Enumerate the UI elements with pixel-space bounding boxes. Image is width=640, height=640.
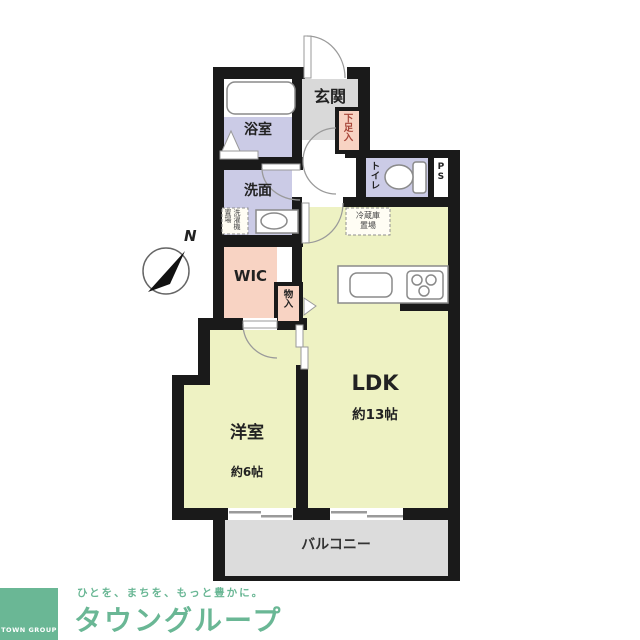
room-label-closet: 物入 (281, 289, 291, 320)
room-label-bathroom: 浴室 (224, 123, 292, 138)
room-label-bedroom: 洋室 (202, 424, 292, 443)
room-label-washer-space: 洗濯機置場 (223, 209, 241, 234)
room-label-balcony: バルコニー (261, 538, 411, 553)
sliding-door-pane (301, 347, 308, 369)
room-label-genkan: 玄関 (302, 88, 358, 106)
logo-brand-name: タウングループ (74, 599, 282, 639)
wic-door-leaf (243, 321, 277, 328)
floorplan-page: 玄関 浴室 洗面 洗濯機置場 下足入 トイレ PS 冷蔵庫置場 WIC 物入 L… (0, 0, 640, 640)
sliding-door-pane (296, 325, 303, 347)
vanity-basin-icon (261, 213, 287, 229)
bathtub-icon (227, 82, 295, 114)
washroom-door-leaf (262, 164, 300, 170)
bedroom-window-icon (228, 508, 293, 520)
logo-tagline: ひとを、まちを、もっと豊かに。 (77, 585, 264, 600)
hall-door-arc-icon (303, 161, 336, 194)
bedroom-floor-lower (184, 385, 307, 508)
compass-north-label: N (184, 228, 197, 245)
ldk-window-icon (330, 508, 403, 520)
room-label-fridge-space: 冷蔵庫置場 (353, 211, 383, 231)
room-label-ldk: LDK (330, 372, 420, 395)
ldk-door-leaf (302, 203, 309, 243)
room-label-washroom: 洗面 (224, 184, 292, 199)
toilet-bowl-icon (385, 165, 413, 189)
toilet-tank-icon (413, 162, 426, 193)
room-label-toilet: トイレ (368, 161, 378, 195)
room-size-ldk: 約13帖 (330, 408, 420, 423)
room-label-pipe-space: PS (435, 162, 445, 194)
compass-icon (143, 248, 189, 294)
room-label-wic: WIC (224, 268, 277, 285)
ldk-floor (300, 207, 448, 508)
room-label-shoe-box: 下足入 (341, 113, 351, 150)
bath-door-sill (220, 151, 258, 159)
entrance-door-leaf (304, 36, 311, 78)
kitchen-sink-icon (350, 273, 392, 297)
logo-square-text: TOWN GROUP (0, 626, 58, 634)
room-size-bedroom: 約6帖 (207, 466, 287, 479)
